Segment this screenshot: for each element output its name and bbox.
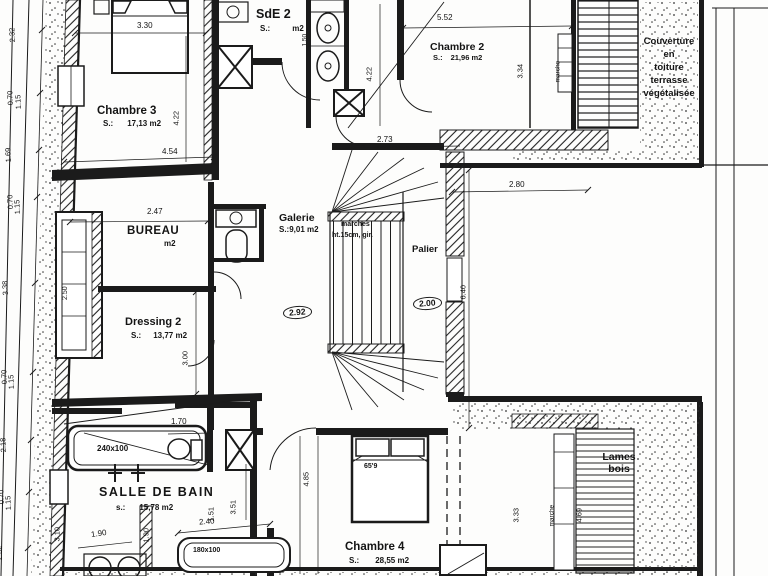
- dim-4-69: 4.69: [576, 508, 584, 523]
- note-line: végétalisée: [636, 87, 702, 100]
- note-line: toiture: [636, 61, 702, 74]
- dim-5-52: 5.52: [437, 14, 453, 22]
- area-prefix: s.:: [116, 504, 125, 512]
- dim-4-54: 4.54: [162, 148, 178, 156]
- room-area-chambre2: S.: 21,96 m2: [433, 54, 482, 62]
- room-label-chambre2: Chambre 2: [430, 42, 484, 53]
- dim-3-00: 3.00: [182, 351, 190, 366]
- chambre4-furniture: [352, 436, 486, 576]
- room-label-palier: Palier: [412, 245, 438, 255]
- area-value: m2: [292, 25, 304, 33]
- note-line: Lames: [596, 451, 642, 463]
- note-lames-bois: Lames bois: [596, 451, 642, 475]
- label-bathtub-large: 240x100: [97, 445, 128, 453]
- dim-2-50: 2.50: [62, 286, 69, 300]
- dim-2-73: 2.73: [377, 136, 393, 144]
- area-value: 21,96 m2: [451, 54, 483, 62]
- stairs-main: [328, 150, 444, 410]
- dim-3-10: 3.10: [54, 527, 62, 542]
- room-area-bureau: m2: [164, 240, 176, 248]
- room-label-galerie: Galerie: [279, 213, 315, 224]
- area-value: 17,13 m2: [127, 120, 161, 128]
- dim-1-70: 1.70: [171, 418, 187, 426]
- note-line: terrasse: [636, 74, 702, 87]
- note-line: bois: [596, 463, 642, 475]
- note-couverture: Couverture en toiture terrasse végétalis…: [636, 35, 702, 100]
- label-bed: 65'9: [364, 463, 377, 470]
- room-area-sde2: S.: m2: [260, 25, 304, 33]
- dim-chain-3: 1.69: [3, 147, 13, 162]
- dim-4-85: 4.85: [303, 472, 311, 487]
- room-label-bureau: BUREAU: [127, 226, 179, 238]
- area-prefix: S.:: [433, 54, 443, 62]
- dim-chain-5: 1.15: [12, 199, 22, 214]
- area-prefix: S.:: [131, 332, 141, 340]
- dim-2-80: 2.80: [509, 181, 525, 189]
- room-area-chambre3: S.: 17,13 m2: [103, 120, 161, 128]
- note-marche-bottom: marche: [550, 505, 557, 527]
- dim-chain-11: 1.15: [3, 495, 13, 510]
- dim-3-51: 3.51: [230, 500, 238, 515]
- label-bathtub-small: 180x100: [193, 547, 220, 554]
- dim-chain-0: 2.32: [7, 27, 17, 42]
- dim-1-51: 1.51: [208, 507, 216, 522]
- dim-chain-6: 3.38: [0, 280, 10, 295]
- area-prefix: S.:: [103, 120, 113, 128]
- room-area-chambre4: S.: 28,55 m2: [349, 557, 409, 565]
- dim-chain-9: 2.18: [0, 437, 8, 452]
- wc-fixtures: [216, 210, 256, 262]
- note-marche-top: marche: [556, 61, 563, 83]
- room-area-galerie: S.:9,01 m2: [279, 226, 319, 234]
- room-label-chambre4: Chambre 4: [345, 542, 404, 554]
- dim-2-47: 2.47: [147, 208, 163, 216]
- dim-chain-12: 2.02: [0, 545, 4, 560]
- area-value: 13,77 m2: [153, 332, 187, 340]
- floor-plan-page: Chambre 3 S.: 17,13 m2 SdE 2 S.: m2 Cham…: [0, 0, 768, 576]
- dim-3-34: 3.34: [517, 64, 525, 79]
- dim-chain-8: 1.15: [6, 374, 16, 389]
- note-line: en: [636, 48, 702, 61]
- area-value: 15,78 m2: [139, 504, 173, 512]
- dim-1-50: 1.50: [303, 34, 310, 47]
- room-label-chambre3: Chambre 3: [97, 106, 156, 118]
- note-marches: marches: [341, 221, 370, 228]
- area-prefix: S.:: [349, 557, 359, 565]
- room-area-salle-de-bain: s.: 15,78 m2: [116, 504, 173, 512]
- room-label-sde2: SdE 2: [256, 8, 291, 21]
- dim-3-33: 3.33: [513, 508, 521, 523]
- dim-1-90-v: 1.90: [143, 528, 151, 543]
- area-prefix: S.:: [260, 25, 270, 33]
- dim-4-22-b: 4.22: [366, 67, 374, 82]
- right-margin-lines: [702, 8, 768, 576]
- note-marches-height: ht.15cm, gir.: [332, 232, 373, 239]
- dim-6-40: 6.40: [460, 285, 468, 300]
- room-area-dressing2: S.: 13,77 m2: [131, 332, 187, 340]
- dim-chain-2: 1.15: [13, 94, 23, 109]
- dim-4-22-a: 4.22: [173, 111, 181, 126]
- area-value: 28,55 m2: [375, 557, 409, 565]
- chambre3-furniture: [94, 0, 188, 73]
- room-label-salle-de-bain: SALLE DE BAIN: [99, 486, 214, 499]
- dim-3-30: 3.30: [137, 22, 153, 30]
- note-line: Couverture: [636, 35, 702, 48]
- room-label-dressing2: Dressing 2: [125, 317, 181, 328]
- deck-lames-bois: [452, 401, 700, 574]
